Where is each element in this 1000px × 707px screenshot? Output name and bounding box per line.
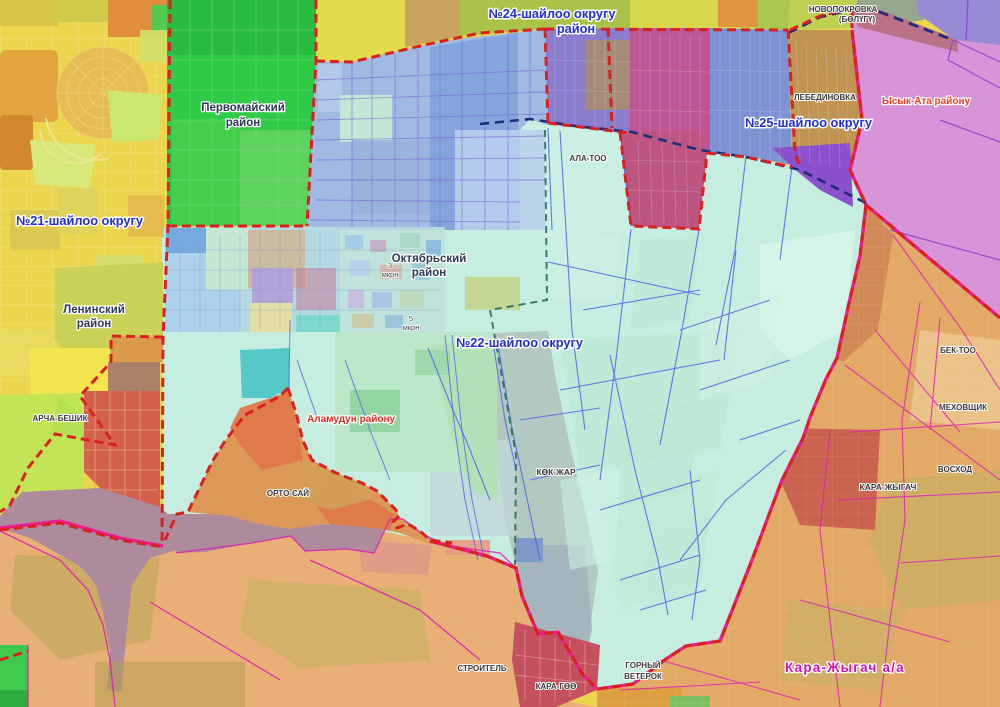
svg-text:МЕХОВЩИК: МЕХОВЩИК [939,403,987,412]
svg-text:Первомайский: Первомайский [201,102,285,114]
svg-text:КӨК-ЖАР: КӨК-ЖАР [536,467,576,477]
svg-text:3: 3 [388,261,392,270]
svg-text:ГОРНЫЙ: ГОРНЫЙ [625,661,661,670]
svg-text:КАРА-ЖЫГАЧ: КАРА-ЖЫГАЧ [860,482,917,492]
svg-text:СТРОИТЕЛЬ: СТРОИТЕЛЬ [457,664,507,673]
svg-text:район: район [557,21,595,36]
svg-text:мкрн: мкрн [403,323,420,332]
svg-text:район: район [77,318,112,330]
svg-text:Аламудун району: Аламудун району [307,414,396,425]
svg-text:№21-шайлоо округу: №21-шайлоо округу [16,213,144,228]
svg-text:АЛА-ТОО: АЛА-ТОО [569,154,606,163]
svg-text:Ысык-Ата району: Ысык-Ата району [882,96,971,107]
svg-text:район: район [412,267,447,279]
svg-text:Октябрьский: Октябрьский [392,253,467,265]
svg-text:№22-шайлоо округу: №22-шайлоо округу [456,335,584,350]
svg-text:ЛЕБЕДИНОВКА: ЛЕБЕДИНОВКА [794,93,856,102]
svg-text:ВОСХОД: ВОСХОД [938,465,973,474]
svg-text:№24-шайлоо округу: №24-шайлоо округу [489,6,617,21]
svg-text:БЕК-ТОО: БЕК-ТОО [940,346,976,355]
svg-text:(БӨЛҮГҮ): (БӨЛҮГҮ) [839,15,876,24]
svg-text:район: район [226,117,261,129]
svg-text:мкрн: мкрн [382,270,399,279]
svg-text:НОВОПОКРОВКА: НОВОПОКРОВКА [809,5,878,14]
svg-text:Ленинский: Ленинский [63,304,125,316]
svg-text:№25-шайлоо округу: №25-шайлоо округу [745,115,873,130]
svg-text:5: 5 [409,314,413,323]
svg-text:КАРА-ГӨӨ: КАРА-ГӨӨ [536,682,577,691]
svg-text:АРЧА-БЕШИК: АРЧА-БЕШИК [33,414,88,423]
svg-text:Кара-Жыгач а/а: Кара-Жыгач а/а [785,660,905,675]
svg-text:ВЕТЕРОК: ВЕТЕРОК [624,672,662,681]
svg-text:ОРТО-САЙ: ОРТО-САЙ [267,489,309,498]
